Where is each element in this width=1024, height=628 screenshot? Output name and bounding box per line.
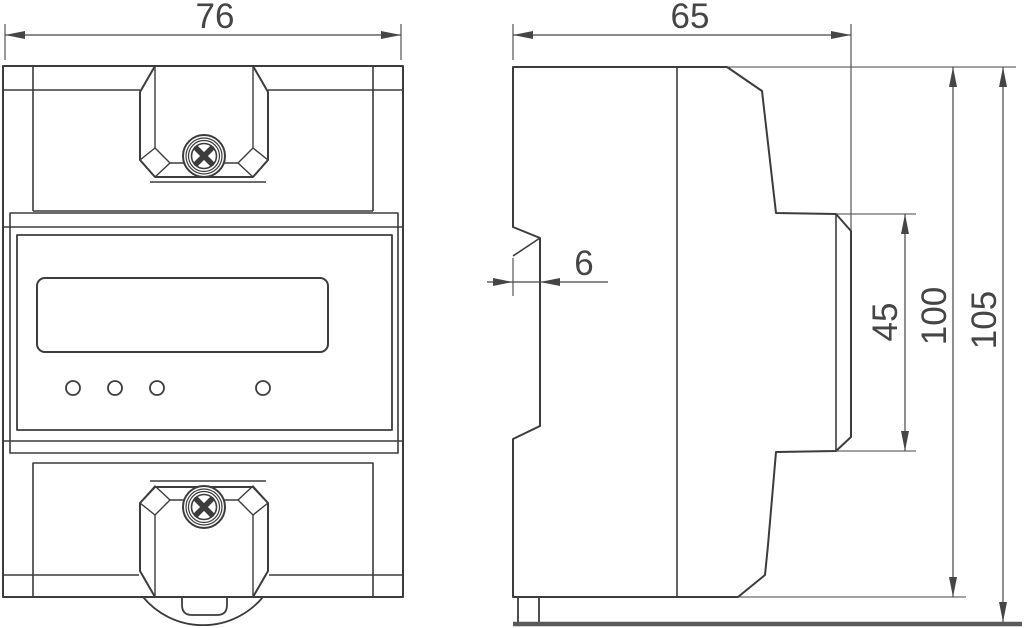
dimension-label-protrusion: 6 — [574, 244, 593, 283]
meter-dimension-drawing: 76 65 6 45 — [0, 0, 1024, 628]
technical-drawing-page: 76 65 6 45 — [0, 0, 1024, 628]
dimension-label-side-depth: 65 — [671, 0, 710, 36]
dimension-label-rail-recess: 45 — [866, 303, 905, 342]
dimension-label-overall-height: 105 — [965, 291, 1004, 349]
dimension-label-body-height: 100 — [915, 287, 954, 345]
bottom-cover-screw — [183, 486, 225, 528]
dimension-label-front-width: 76 — [196, 0, 235, 36]
top-cover-screw — [183, 135, 225, 177]
